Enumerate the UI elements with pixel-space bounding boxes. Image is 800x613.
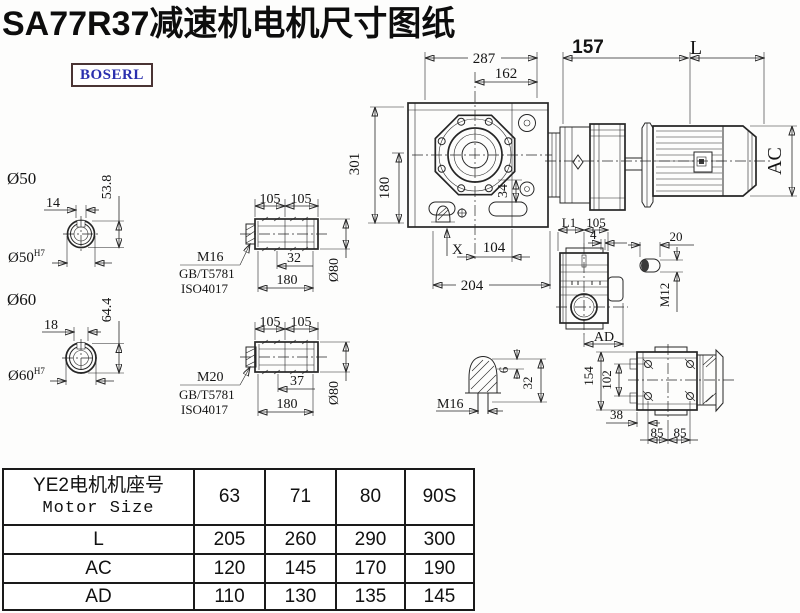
table-row: AD 110 130 135 145: [3, 583, 474, 610]
sleeveB-dim-105a: 105: [260, 315, 281, 330]
dim-162: 162: [495, 66, 518, 82]
cell-L-71: 260: [265, 525, 336, 554]
bore60-fit-label: Ø60H7: [8, 366, 45, 384]
cell-L-63: 205: [194, 525, 265, 554]
top-dim-85b: 85: [674, 425, 687, 440]
size-col-71: 71: [265, 469, 336, 525]
sleeveB-dim-105b: 105: [291, 315, 312, 330]
side-dim-AD: AD: [594, 330, 614, 345]
plug-dim-32: 32: [520, 377, 535, 390]
table-row: AC 120 145 170 190: [3, 554, 474, 583]
gearbox-front-view: [408, 72, 552, 262]
side-dim-4: 4: [590, 227, 597, 242]
cell-AD-90s: 145: [405, 583, 474, 610]
cell-AC-63: 120: [194, 554, 265, 583]
dim-204: 204: [461, 278, 484, 294]
lifting-eye-mark: [573, 155, 583, 169]
header-cn: YE2电机机座号: [4, 474, 193, 498]
cell-AD-80: 135: [336, 583, 405, 610]
size-col-90s: 90S: [405, 469, 474, 525]
cell-AC-71: 145: [265, 554, 336, 583]
plug-dim-6: 6: [496, 366, 511, 373]
dim-18: 18: [44, 318, 58, 333]
dim-53-8: 53.8: [100, 175, 115, 200]
sleeveA-dim-105b: 105: [291, 192, 312, 207]
top-dim-38: 38: [610, 407, 623, 422]
sleeve-detail-m16: 105 105 32 180 Ø80 M16 GB/T5781 ISO4017: [179, 192, 350, 296]
row-label-AD: AD: [3, 583, 194, 610]
sleeveA-dim-80: Ø80: [327, 258, 342, 282]
dim-180-v: 180: [377, 177, 393, 200]
cell-AD-63: 110: [194, 583, 265, 610]
bore60-label: Ø60: [7, 290, 36, 309]
sleeveA-bolt-label: M16: [197, 250, 223, 265]
dim-64-4: 64.4: [100, 298, 115, 323]
bore50-fit-label: Ø50H7: [8, 248, 45, 266]
cell-AD-71: 130: [265, 583, 336, 610]
dim-34: 34: [496, 184, 511, 198]
plug-detail: M16 6 32: [436, 349, 547, 414]
cell-AC-90s: 190: [405, 554, 474, 583]
sleeveB-dim-180: 180: [277, 397, 298, 412]
cell-L-90s: 300: [405, 525, 474, 554]
top-dim-102: 102: [599, 370, 614, 390]
sleeveB-std1: GB/T5781: [179, 387, 235, 402]
header-en: Motor Size: [4, 498, 193, 520]
sleeveB-dim-80: Ø80: [327, 381, 342, 405]
side-dim-L1: L1: [562, 215, 576, 230]
sleeveA-std2: ISO4017: [181, 281, 228, 296]
sleeveA-dim-180: 180: [277, 273, 298, 288]
brand-logo: BOSERL: [71, 63, 153, 87]
dim-14: 14: [46, 196, 60, 211]
dim-104: 104: [483, 240, 506, 256]
row-label-L: L: [3, 525, 194, 554]
size-col-63: 63: [194, 469, 265, 525]
drawing-sheet: 287 162 157 L AC 301 180 34 X 104 204 Ø5…: [0, 0, 800, 613]
gearbox-top-view: 154 102 38 85 85: [581, 344, 735, 444]
table-header-row: YE2电机机座号 Motor Size 63 71 80 90S: [3, 469, 474, 525]
sleeve-detail-m20: 105 105 37 180 Ø80 M20 GB/T5781 ISO4017: [179, 315, 350, 417]
sleeveB-std2: ISO4017: [181, 402, 228, 417]
dim-AC: AC: [764, 147, 786, 175]
bore-detail-60: Ø60 18 64.4 Ø60H7: [7, 290, 124, 385]
dim-157: 157: [572, 37, 604, 58]
cell-L-80: 290: [336, 525, 405, 554]
row-label-AC: AC: [3, 554, 194, 583]
top-dim-85a: 85: [651, 425, 664, 440]
sleeveB-bolt-label: M20: [197, 370, 223, 385]
dim-301: 301: [347, 153, 363, 176]
sleeveB-dim-37: 37: [290, 374, 304, 389]
motor-side-view: [545, 123, 772, 210]
table-row: L 205 260 290 300: [3, 525, 474, 554]
header-motor-size: YE2电机机座号 Motor Size: [3, 469, 194, 525]
key-dim-M12: M12: [657, 283, 672, 308]
cell-AC-80: 170: [336, 554, 405, 583]
dim-X: X: [452, 242, 463, 258]
page-title: SA77R37减速机电机尺寸图纸: [2, 0, 455, 45]
plug-dim-M16: M16: [437, 397, 463, 412]
size-col-80: 80: [336, 469, 405, 525]
dim-287: 287: [473, 51, 496, 67]
bore50-label: Ø50: [7, 169, 36, 188]
top-dim-154: 154: [581, 366, 596, 386]
motor-size-table: YE2电机机座号 Motor Size 63 71 80 90S L 205 2…: [2, 468, 475, 611]
sleeveA-dim-105a: 105: [260, 192, 281, 207]
key-detail: 20 M12: [628, 229, 694, 312]
bore-detail-50: Ø50 14 53.8 Ø50H7: [7, 169, 124, 267]
dim-L: L: [690, 37, 702, 59]
gearbox-side-view: L1 105 4 AD: [556, 215, 628, 347]
sleeveA-dim-32: 32: [287, 251, 301, 266]
key-dim-20: 20: [670, 229, 683, 244]
sleeveA-std1: GB/T5781: [179, 266, 235, 281]
